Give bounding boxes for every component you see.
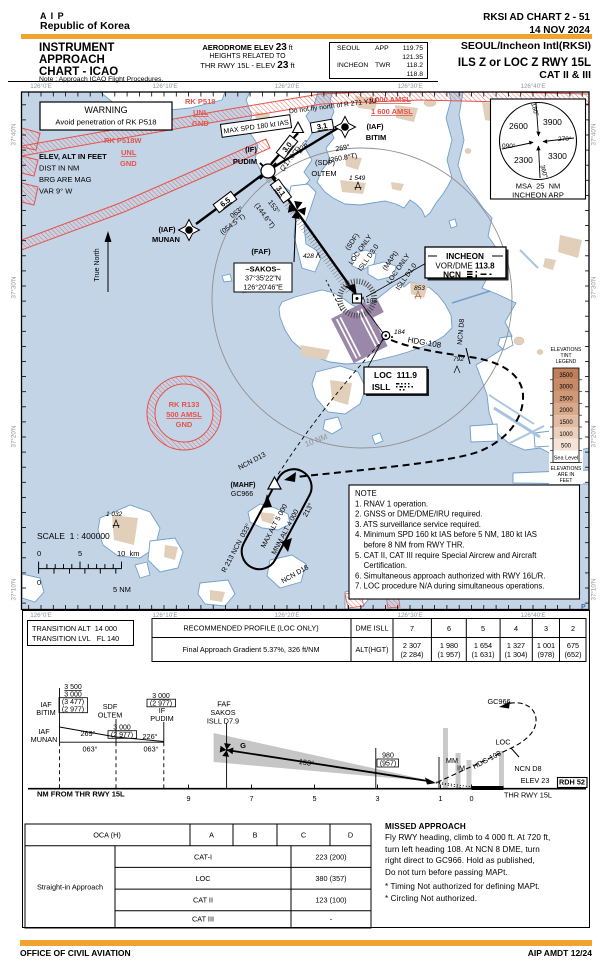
svg-text:(957): (957) <box>380 761 396 768</box>
svg-text:GC966: GC966 <box>487 697 510 706</box>
svg-text:OLTEM: OLTEM <box>98 711 123 720</box>
svg-text:063°: 063° <box>82 745 97 754</box>
svg-text:HDG·108: HDG·108 <box>471 749 502 771</box>
svg-text:BITIM: BITIM <box>36 708 55 717</box>
svg-text:G: G <box>240 741 246 750</box>
svg-text:7: 7 <box>249 794 253 803</box>
svg-text:LOC: LOC <box>495 738 510 747</box>
svg-text:3: 3 <box>375 794 379 803</box>
svg-text:063°: 063° <box>143 745 158 754</box>
svg-text:980: 980 <box>382 753 394 760</box>
svg-text:ELEV 23: ELEV 23 <box>521 776 550 785</box>
svg-text:RDH 52: RDH 52 <box>559 778 585 787</box>
svg-text:3 500: 3 500 <box>64 684 82 691</box>
svg-text:MUNAN: MUNAN <box>31 735 58 744</box>
svg-text:226°: 226° <box>142 732 157 741</box>
svg-text:0: 0 <box>469 794 473 803</box>
svg-text:1: 1 <box>438 794 442 803</box>
svg-text:(3 477): (3 477) <box>62 699 84 706</box>
svg-text:5: 5 <box>312 794 316 803</box>
svg-text:269°: 269° <box>80 729 95 738</box>
svg-text:THR RWY 15L: THR RWY 15L <box>504 791 552 800</box>
svg-text:PUDIM: PUDIM <box>150 714 174 723</box>
svg-text:9: 9 <box>186 794 190 803</box>
svg-text:NM FROM THR RWY 15L: NM FROM THR RWY 15L <box>37 790 125 799</box>
svg-text:ISLL D7.9: ISLL D7.9 <box>207 717 239 726</box>
svg-text:IM: IM <box>457 764 465 773</box>
svg-text:NCN D8: NCN D8 <box>514 764 541 773</box>
